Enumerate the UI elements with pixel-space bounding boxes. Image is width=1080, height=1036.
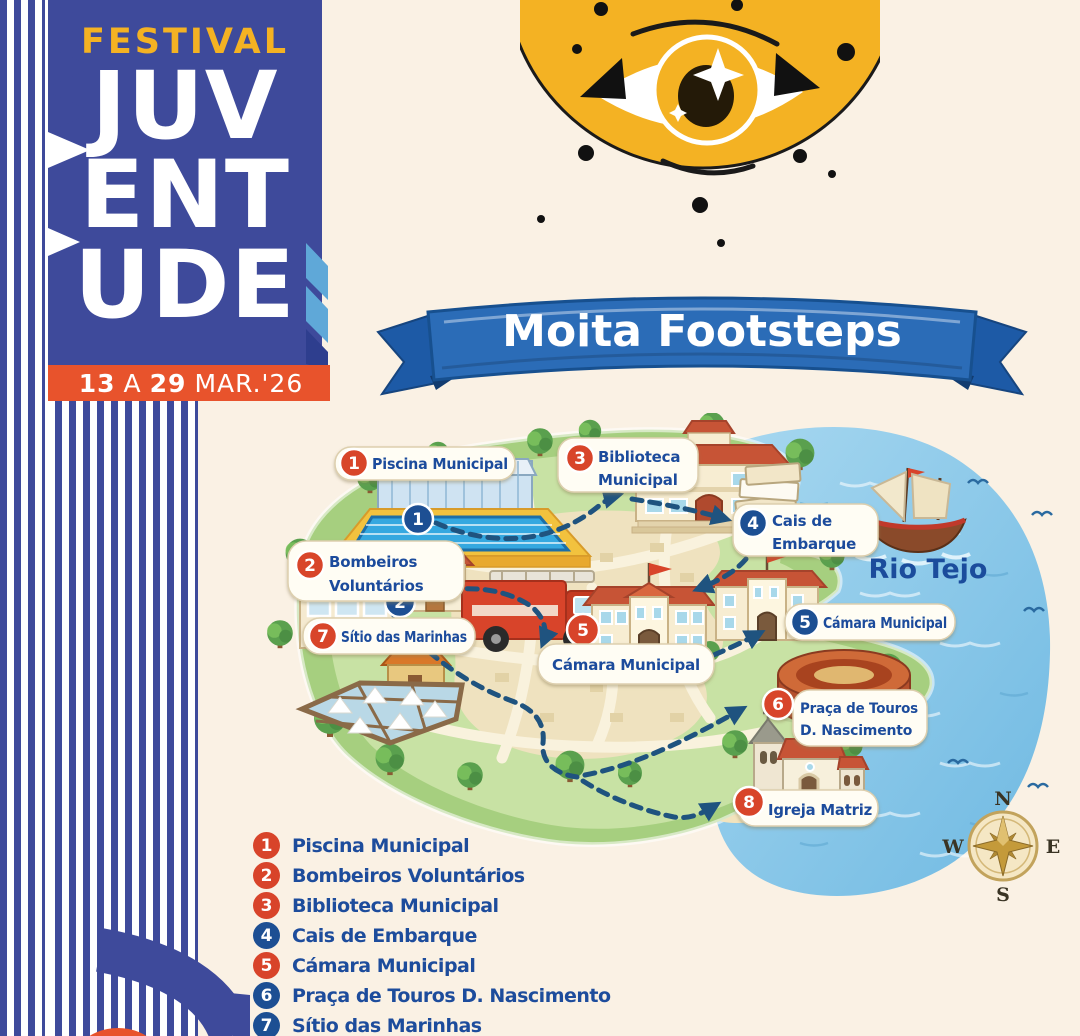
legend-item-5: 5 Cámara Municipal — [253, 951, 611, 980]
svg-text:1: 1 — [348, 454, 360, 474]
legend-item-1: 1 Piscina Municipal — [253, 831, 611, 860]
svg-text:Cais de: Cais de — [772, 512, 832, 530]
map-label-igreja-matriz: 8 Igreja Matriz — [734, 787, 878, 826]
svg-text:Piscina Municipal: Piscina Municipal — [372, 455, 508, 473]
svg-text:Bombeiros: Bombeiros — [329, 553, 418, 571]
legend-item-2: 2 Bombeiros Voluntários — [253, 861, 611, 890]
legend-item-3: 3 Biblioteca Municipal — [253, 891, 611, 920]
bottom-arc-decoration — [0, 895, 250, 1036]
svg-text:Embarque: Embarque — [772, 535, 856, 553]
svg-text:D. Nascimento: D. Nascimento — [800, 723, 913, 739]
lightning-accent-icon — [298, 238, 338, 370]
compass-north: N — [994, 788, 1011, 810]
map-label-sitio-das-marinhas: 7 Sítio das Marinhas — [303, 618, 475, 654]
svg-text:1: 1 — [412, 510, 424, 530]
route-marker-5: 5 — [567, 614, 599, 646]
map-label-piscina-municipal: 1 Piscina Municipal — [335, 447, 515, 480]
poster-canvas: FESTIVAL JUV ENT UDE 13 A 29 MAR.'26 — [0, 0, 1080, 1036]
svg-text:3: 3 — [574, 449, 586, 469]
legend-marker-3: 3 — [253, 892, 280, 919]
pennant-triangles — [48, 0, 98, 132]
date-month: MAR.'26 — [194, 369, 303, 398]
banner-title: Moita Footsteps — [502, 306, 902, 357]
legend-marker-5: 5 — [253, 952, 280, 979]
svg-text:7: 7 — [317, 627, 329, 647]
svg-text:Cámara Municipal: Cámara Municipal — [552, 656, 700, 674]
svg-text:5: 5 — [799, 613, 811, 633]
legend-item-7: 7 Sítio das Marinhas — [253, 1011, 611, 1036]
legend-marker-1: 1 — [253, 832, 280, 859]
compass-south: S — [996, 884, 1010, 906]
legend-item-6: 6 Praça de Touros D. Nascimento — [253, 981, 611, 1010]
date-from: 13 — [79, 369, 116, 398]
title-line-3: UDE — [48, 241, 322, 330]
edge-notch — [48, 228, 80, 256]
legend-label-4: Cais de Embarque — [292, 925, 477, 947]
map-label-camara-municipal-right: 5 Cámara Municipal — [785, 604, 955, 640]
legend-label-3: Biblioteca Municipal — [292, 895, 499, 917]
svg-text:8: 8 — [743, 793, 755, 813]
edge-notch — [48, 132, 90, 168]
map-label-cais-de-embarque: 4 Cais de Embarque — [733, 504, 878, 556]
legend-label-1: Piscina Municipal — [292, 835, 469, 857]
svg-text:Sítio das Marinhas: Sítio das Marinhas — [341, 628, 467, 646]
svg-text:Igreja Matriz: Igreja Matriz — [768, 801, 872, 819]
legend-label-6: Praça de Touros D. Nascimento — [292, 985, 611, 1007]
svg-text:Voluntários: Voluntários — [329, 577, 424, 595]
route-marker-1: 1 — [403, 504, 433, 534]
legend-label-5: Cámara Municipal — [292, 955, 475, 977]
date-to: 29 — [150, 369, 187, 398]
festival-title-panel: FESTIVAL JUV ENT UDE — [48, 0, 322, 365]
compass-east: E — [1046, 836, 1060, 858]
legend-marker-6: 6 — [253, 982, 280, 1009]
date-conj: A — [124, 369, 142, 398]
svg-text:Municipal: Municipal — [598, 471, 678, 489]
map-label-bombeiros: 2 Bombeiros Voluntários — [288, 541, 464, 601]
legend-marker-4: 4 — [253, 922, 280, 949]
legend-label-7: Sítio das Marinhas — [292, 1015, 482, 1036]
river-label: Rio Tejo — [869, 554, 988, 585]
left-stripes — [0, 0, 45, 1036]
compass-west: W — [941, 836, 964, 858]
legend-label-2: Bombeiros Voluntários — [292, 865, 525, 887]
map-label-camara-municipal-center: Cámara Municipal — [538, 644, 714, 684]
svg-text:6: 6 — [772, 695, 784, 715]
svg-text:5: 5 — [577, 621, 589, 641]
date-banner: 13 A 29 MAR.'26 — [48, 365, 330, 401]
legend-marker-2: 2 — [253, 862, 280, 889]
svg-text:Biblioteca: Biblioteca — [598, 448, 680, 466]
svg-text:2: 2 — [304, 556, 316, 576]
svg-text:Cámara Municipal: Cámara Municipal — [823, 614, 947, 632]
banner-ribbon: Moita Footsteps — [372, 288, 1032, 410]
map-label-biblioteca: 3 Biblioteca Municipal — [558, 438, 698, 492]
eye-illustration — [520, 0, 880, 260]
svg-text:4: 4 — [747, 514, 759, 534]
legend: 1 Piscina Municipal 2 Bombeiros Voluntár… — [253, 831, 611, 1036]
legend-item-4: 4 Cais de Embarque — [253, 921, 611, 950]
svg-text:Praça de Touros: Praça de Touros — [800, 701, 918, 717]
legend-marker-7: 7 — [253, 1012, 280, 1036]
